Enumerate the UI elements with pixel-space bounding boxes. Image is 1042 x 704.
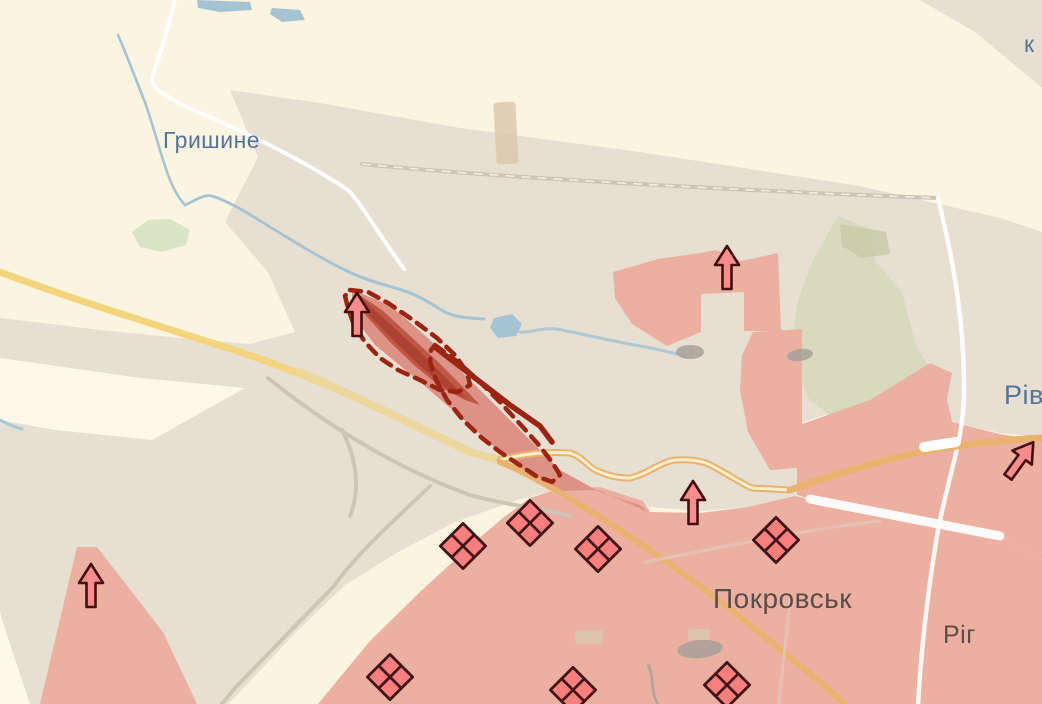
label-pokrovsk: Покровськ bbox=[713, 583, 852, 614]
tan-field-block bbox=[493, 101, 518, 164]
label-k-partial: к bbox=[1024, 31, 1035, 57]
road-bridge bbox=[924, 442, 956, 447]
map-canvas[interactable]: Гришине Покровськ Рів Ріг к bbox=[0, 0, 1042, 704]
label-hryshyne: Гришине bbox=[163, 127, 260, 153]
label-riv-partial: Рів bbox=[1004, 380, 1042, 410]
label-rih-partial: Ріг bbox=[943, 621, 976, 649]
